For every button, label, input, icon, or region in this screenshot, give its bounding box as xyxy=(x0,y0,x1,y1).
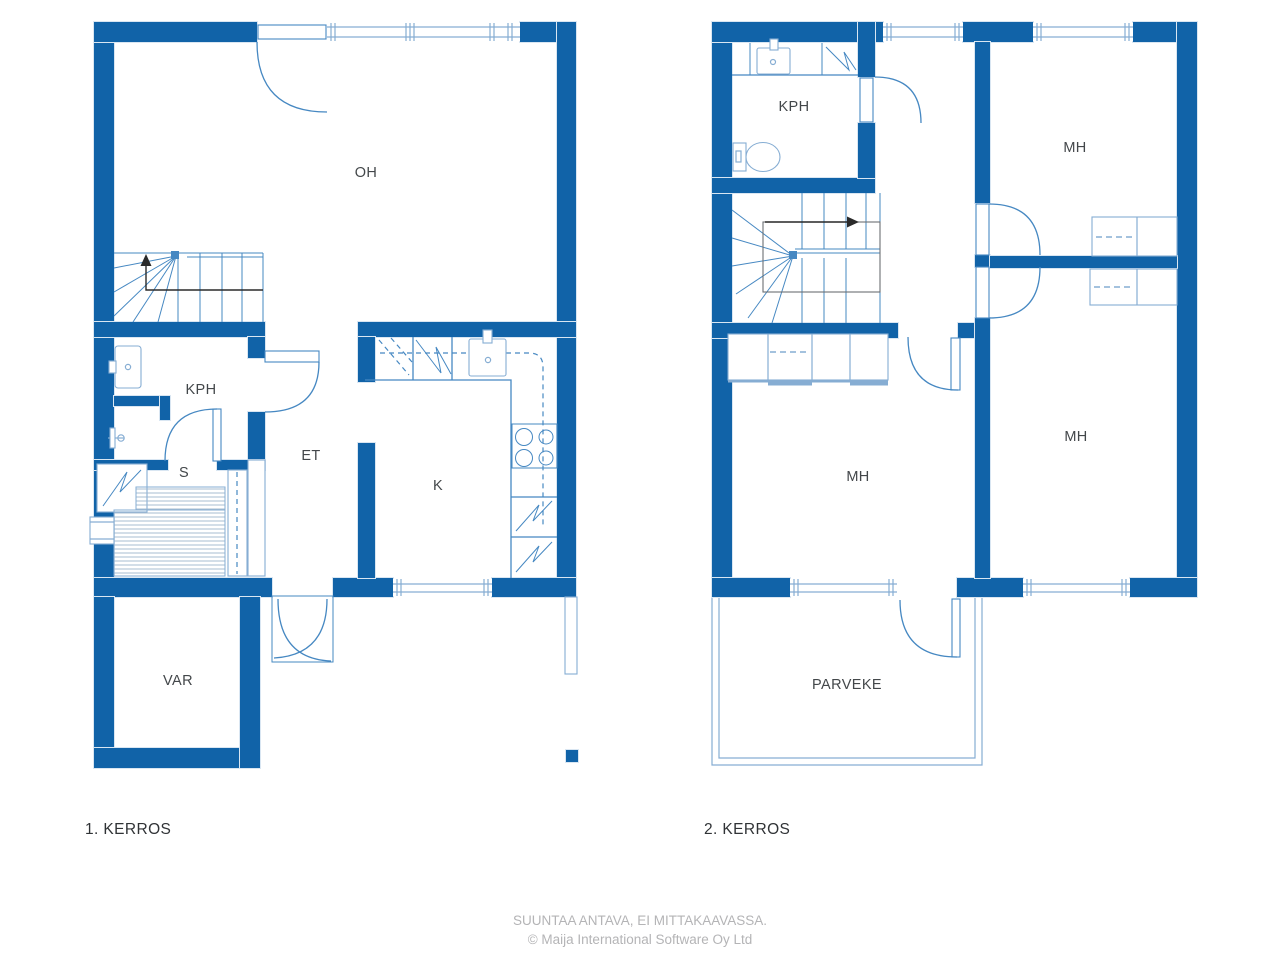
room-label-s: S xyxy=(179,465,189,481)
room-label-parveke: PARVEKE xyxy=(812,677,882,693)
room-label-oh: OH xyxy=(355,165,378,181)
floor1-shower-valve-icon xyxy=(108,428,124,448)
floor2-door-mh-bottom-left xyxy=(908,337,960,390)
room-label-mh-right: MH xyxy=(1064,429,1087,445)
floor2-window-bottom-right xyxy=(1023,579,1130,596)
floor2-door-mh-top-right xyxy=(976,204,1040,255)
floor2-toilet-icon xyxy=(733,143,780,172)
floor1-door-sauna xyxy=(165,409,221,461)
floor1-plan: OH KPH ET S K VAR xyxy=(90,22,578,768)
floor1-title: 1. KERROS xyxy=(85,821,171,838)
floor1-stairs xyxy=(114,251,263,322)
floor2-bathroom-counter xyxy=(732,43,858,75)
copyright-text: © Maija International Software Oy Ltd xyxy=(528,932,753,947)
floor1-window-top xyxy=(327,23,520,41)
appliance-symbol xyxy=(516,501,552,531)
washing-machine-symbol xyxy=(826,47,856,70)
floor2-title: 2. KERROS xyxy=(704,821,790,838)
floor2-plan: KPH MH MH MH PARVEKE xyxy=(712,22,1197,765)
room-label-mh-top: MH xyxy=(1063,140,1086,156)
fridge-symbol xyxy=(416,340,451,374)
porch-edge xyxy=(565,597,577,674)
floor2-window-top-right xyxy=(1033,23,1133,41)
room-label-mh-left: MH xyxy=(846,469,869,485)
floor1-window-sauna xyxy=(90,517,114,544)
floor1-stove-icon xyxy=(512,424,557,468)
sauna-bench-lower xyxy=(114,510,225,576)
stairwell-void-outline xyxy=(763,222,880,292)
room-label-et: ET xyxy=(301,448,320,464)
floor1-sauna-partition xyxy=(228,460,265,576)
floor2-wardrobe-bottom-right xyxy=(1090,269,1177,305)
floor2-wardrobe-left xyxy=(728,334,888,384)
sauna-bench-upper xyxy=(136,487,225,510)
floor2-bathroom-sink-icon xyxy=(757,39,790,74)
floor2-window-top-left xyxy=(883,23,963,41)
appliance-symbol xyxy=(516,542,552,572)
room-label-k: K xyxy=(433,478,443,494)
floor2-wardrobe-top-right xyxy=(1092,217,1177,256)
stairs-direction-arrow xyxy=(765,217,859,228)
floorplan-drawing: OH KPH ET S K VAR xyxy=(0,0,1280,960)
floor1-walls xyxy=(94,22,578,768)
floor1-kitchen-counter xyxy=(365,337,557,578)
floor1-door-oh xyxy=(257,25,327,112)
floor1-entrance-door xyxy=(272,596,333,662)
floor2-door-mh-bottom-right xyxy=(976,267,1040,318)
floor2-door-kph xyxy=(860,77,921,123)
floor2-window-bottom-left xyxy=(790,579,897,596)
room-label-var: VAR xyxy=(163,673,193,689)
disclaimer-text: SUUNTAA ANTAVA, EI MITTAKAAVASSA. xyxy=(513,913,767,928)
floor2-balcony-door xyxy=(900,599,960,657)
floor1-door-kph xyxy=(265,351,319,412)
floor1-window-kitchen xyxy=(393,579,492,596)
room-label-kph-f1: KPH xyxy=(185,382,216,398)
floor2-stairs xyxy=(732,193,880,323)
room-label-kph-f2: KPH xyxy=(778,99,809,115)
floorplan-page: OH KPH ET S K VAR xyxy=(0,0,1280,960)
porch-post xyxy=(566,750,578,762)
